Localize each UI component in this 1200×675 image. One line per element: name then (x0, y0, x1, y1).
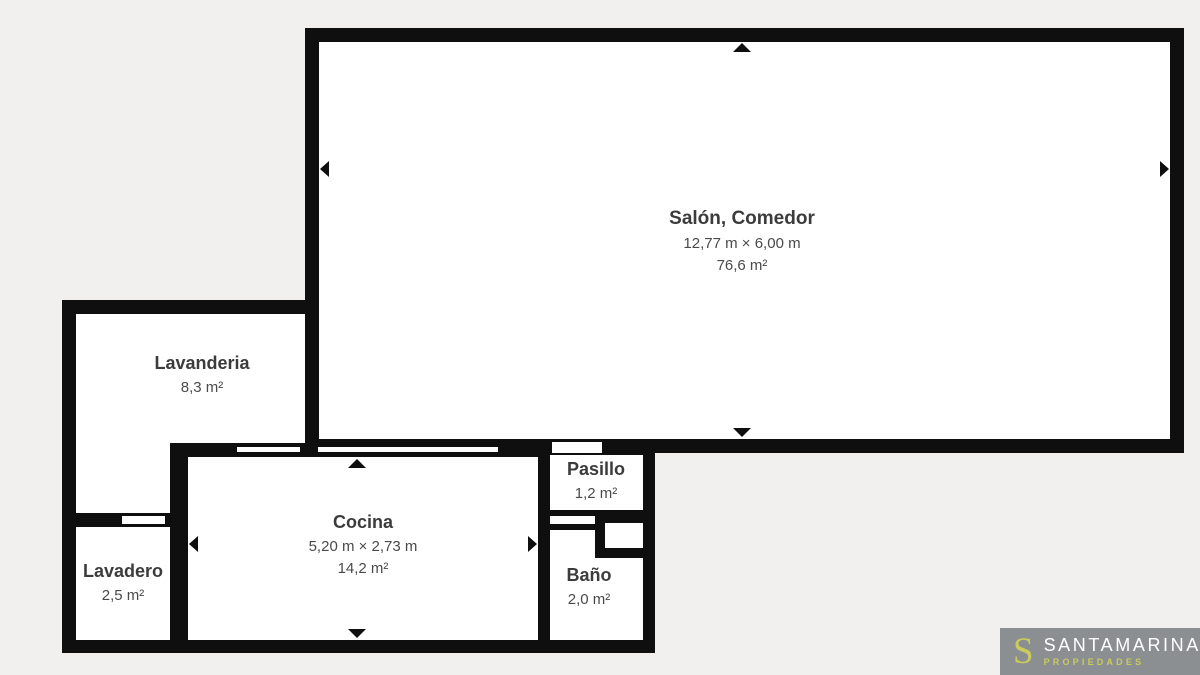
brand-tagline: PROPIEDADES (1044, 657, 1200, 667)
room-area: 1,2 m² (567, 485, 625, 503)
wall (538, 437, 550, 653)
dimension-arrow-right-icon (1160, 161, 1169, 177)
dimension-arrow-down-icon (348, 629, 366, 638)
wall-opening (318, 445, 498, 454)
room-label-cocina: Cocina 5,20 m × 2,73 m 14,2 m² (309, 512, 418, 578)
room-label-salon: Salón, Comedor 12,77 m × 6,00 m 76,6 m² (669, 208, 815, 275)
wall (305, 28, 1183, 42)
wall (305, 28, 319, 457)
logo-monogram-icon: S (1013, 635, 1034, 668)
duct-niche (595, 523, 643, 558)
dimension-arrow-left-icon (320, 161, 329, 177)
wall (170, 443, 188, 653)
dimension-arrow-left-icon (189, 536, 198, 552)
dimension-arrow-down-icon (733, 428, 751, 437)
room-area: 8,3 m² (154, 379, 249, 397)
room-label-bano: Baño 2,0 m² (567, 565, 612, 609)
wall (62, 640, 655, 653)
room-name: Salón, Comedor (669, 208, 815, 231)
room-interior-lavanderia (76, 443, 170, 513)
room-name: Baño (567, 565, 612, 587)
window-opening (237, 445, 300, 454)
room-dimensions: 5,20 m × 2,73 m (309, 538, 418, 556)
room-area: 76,6 m² (669, 257, 815, 275)
dimension-arrow-up-icon (733, 43, 751, 52)
wall (643, 437, 655, 653)
brand-name: SANTAMARINA (1044, 636, 1200, 656)
room-area: 2,0 m² (567, 591, 612, 609)
room-name: Pasillo (567, 459, 625, 481)
room-name: Lavadero (83, 561, 163, 583)
room-name: Lavanderia (154, 353, 249, 375)
wall (1170, 28, 1184, 453)
dimension-arrow-right-icon (528, 536, 537, 552)
room-dimensions: 12,77 m × 6,00 m (669, 235, 815, 253)
wall (62, 300, 319, 314)
floorplan: Salón, Comedor 12,77 m × 6,00 m 76,6 m² … (0, 0, 1200, 675)
room-area: 14,2 m² (309, 560, 418, 578)
door-opening (550, 516, 595, 524)
room-label-pasillo: Pasillo 1,2 m² (567, 459, 625, 503)
wall (62, 300, 76, 653)
door-opening (552, 442, 602, 453)
room-area: 2,5 m² (83, 587, 163, 605)
dimension-arrow-up-icon (348, 459, 366, 468)
agency-logo: S SANTAMARINA PROPIEDADES (1000, 628, 1200, 675)
door-opening (122, 516, 165, 524)
room-label-lavadero: Lavadero 2,5 m² (83, 561, 163, 605)
room-label-lavanderia: Lavanderia 8,3 m² (154, 353, 249, 397)
room-name: Cocina (309, 512, 418, 534)
